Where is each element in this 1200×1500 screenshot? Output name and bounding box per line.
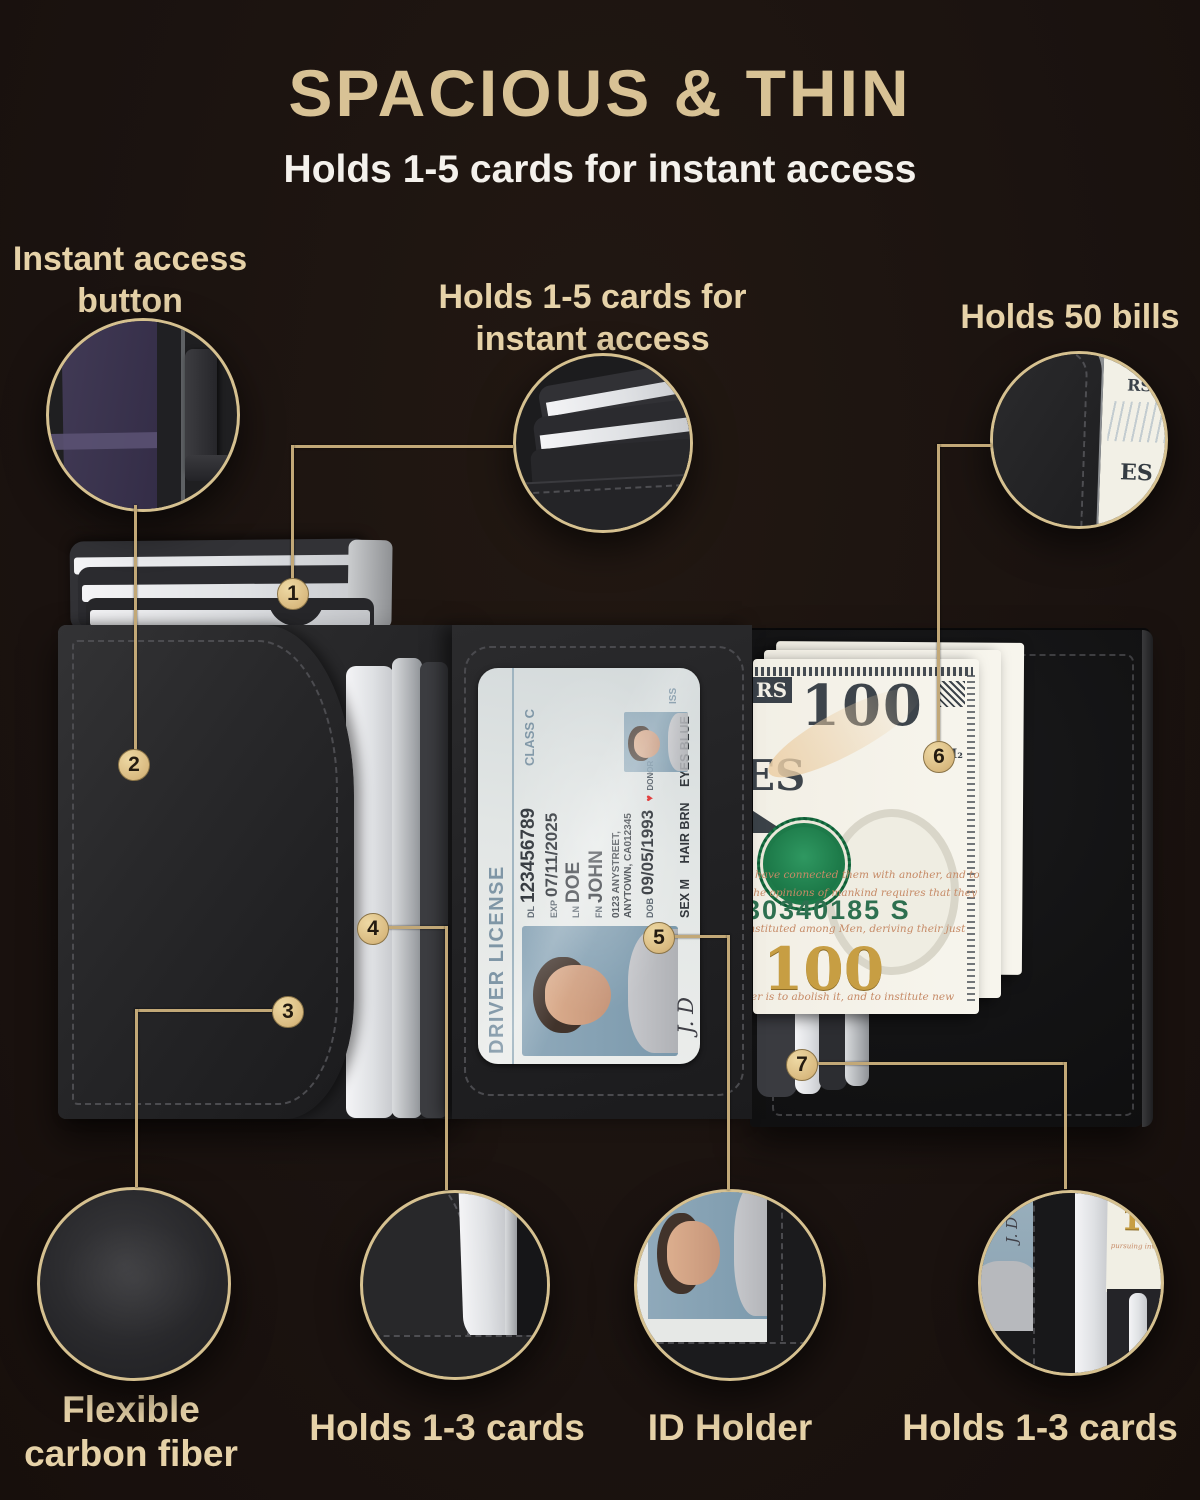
inset-card-slot bbox=[360, 1190, 550, 1380]
callout-badge-2: 2 bbox=[118, 749, 150, 781]
callout-line-3 bbox=[135, 1009, 138, 1187]
page-title: SPACIOUS & THIN bbox=[0, 55, 1200, 131]
inset-bills-corner: RS ES bbox=[990, 351, 1168, 529]
inset-back-slot: J. D 100 pursuing invariably the same Ob… bbox=[978, 1190, 1164, 1376]
bill-pattern bbox=[1107, 401, 1168, 443]
stitching bbox=[72, 640, 338, 1105]
bill-fragment: 100 pursuing invariably the same Object bbox=[1106, 1190, 1164, 1294]
label-flexible-carbon-fiber: Flexible carbon fiber bbox=[11, 1388, 251, 1476]
label-holds-50-bills: Holds 50 bills bbox=[930, 296, 1200, 338]
leather-corner bbox=[990, 351, 1103, 529]
window-glass-sheen bbox=[478, 668, 700, 1064]
callout-line-5 bbox=[672, 935, 729, 938]
stitching bbox=[513, 483, 693, 495]
purple-card bbox=[61, 318, 163, 512]
bill-script-line: pursuing invariably the same Object bbox=[1111, 1238, 1164, 1257]
dark-card-fragment bbox=[1107, 1289, 1164, 1376]
card-edge bbox=[90, 610, 370, 626]
page-subtitle: Holds 1-5 cards for instant access bbox=[0, 148, 1200, 192]
card-edge bbox=[757, 1000, 797, 1097]
id-photo bbox=[648, 1189, 774, 1319]
bill-fragment-rs: RS bbox=[1127, 375, 1153, 395]
access-button-lever bbox=[185, 349, 217, 471]
callout-line-1 bbox=[291, 445, 294, 579]
callout-badge-7: 7 bbox=[786, 1049, 818, 1081]
bill-denomination-gold: 100 bbox=[763, 935, 884, 1003]
cover-edge bbox=[1142, 630, 1153, 1127]
pocket-leather bbox=[513, 473, 693, 533]
inset-card-fan bbox=[513, 353, 693, 533]
callout-line-1 bbox=[292, 445, 513, 448]
callout-badge-1: 1 bbox=[277, 578, 309, 610]
card-stripe bbox=[1159, 1293, 1164, 1373]
label-holds-1-5-cards: Holds 1-5 cards for instant access bbox=[370, 276, 815, 360]
label-id-holder: ID Holder bbox=[592, 1406, 868, 1450]
label-line: button bbox=[8, 280, 252, 322]
bill-serial-number: 30340185 S bbox=[753, 895, 911, 926]
stitching bbox=[990, 351, 1088, 529]
bill-hatch bbox=[939, 681, 965, 707]
card-edge bbox=[458, 1190, 510, 1346]
leather-sheen bbox=[60, 1220, 210, 1340]
hem-leather bbox=[360, 1335, 550, 1380]
product-infographic: SPACIOUS & THIN Holds 1-5 cards for inst… bbox=[0, 0, 1200, 1500]
label-holds-1-3-left: Holds 1-3 cards bbox=[262, 1406, 632, 1450]
shirt-fragment bbox=[978, 1261, 1041, 1331]
label-holds-1-3-right: Holds 1-3 cards bbox=[880, 1406, 1200, 1450]
label-line: Instant access bbox=[8, 238, 252, 280]
callout-line-7 bbox=[815, 1062, 1067, 1065]
callout-line-2 bbox=[134, 505, 137, 750]
leather-strap bbox=[1033, 1190, 1078, 1376]
bill-edge: RS ES bbox=[1097, 351, 1168, 529]
callout-line-5 bbox=[727, 935, 730, 1190]
callout-badge-6: 6 bbox=[923, 741, 955, 773]
callout-line-7 bbox=[1064, 1062, 1067, 1189]
label-instant-access-button: Instant access button bbox=[8, 238, 252, 322]
callout-line-6 bbox=[937, 444, 992, 447]
card-stripe bbox=[1129, 1293, 1147, 1376]
bill-script-line: have connected them with another, and to bbox=[755, 867, 979, 884]
callout-line-3 bbox=[135, 1009, 273, 1012]
dollar-bill-front: RS 100 H₂ ES have connected them with an… bbox=[753, 659, 979, 1014]
bill-fragment-es: ES bbox=[1120, 459, 1154, 486]
bill-denomination: 100 bbox=[1121, 1202, 1164, 1238]
button-stem bbox=[195, 489, 203, 512]
callout-line-4 bbox=[386, 926, 448, 929]
id-window: DRIVER LICENSE CLASS C DL123456789 EXP07… bbox=[478, 668, 700, 1064]
label-line: Holds 1-5 cards for bbox=[370, 276, 815, 318]
bill-fragment-rs: RS bbox=[753, 677, 792, 703]
bill-edge-ticks bbox=[967, 671, 975, 1001]
callout-badge-4: 4 bbox=[357, 913, 389, 945]
photo-fragment: J. D bbox=[978, 1190, 1037, 1331]
inset-instant-access-button bbox=[46, 318, 240, 512]
callout-line-6 bbox=[937, 444, 940, 744]
bill-border bbox=[1108, 1192, 1164, 1201]
purple-card-stripe bbox=[49, 432, 161, 450]
inset-carbon-fiber bbox=[37, 1187, 231, 1381]
access-button-foot bbox=[185, 455, 240, 481]
wallet-front-pocket bbox=[58, 625, 354, 1119]
callout-badge-5: 5 bbox=[643, 922, 675, 954]
card-edge-dark bbox=[157, 318, 183, 512]
signature-fragment: J. D bbox=[1003, 1217, 1021, 1243]
inset-id-holder: DL 123456789 EXP 07/11/2025 LN DOE FN JO… bbox=[634, 1189, 826, 1381]
wallet-id-panel: DRIVER LICENSE CLASS C DL123456789 EXP07… bbox=[452, 625, 752, 1119]
pocket-card-dark bbox=[420, 662, 448, 1118]
card-edge bbox=[1075, 1190, 1109, 1376]
callout-line-4 bbox=[445, 926, 448, 1190]
callout-badge-3: 3 bbox=[272, 996, 304, 1028]
window-frame-bottom bbox=[634, 1342, 826, 1381]
pocket-card-silver bbox=[392, 658, 422, 1118]
